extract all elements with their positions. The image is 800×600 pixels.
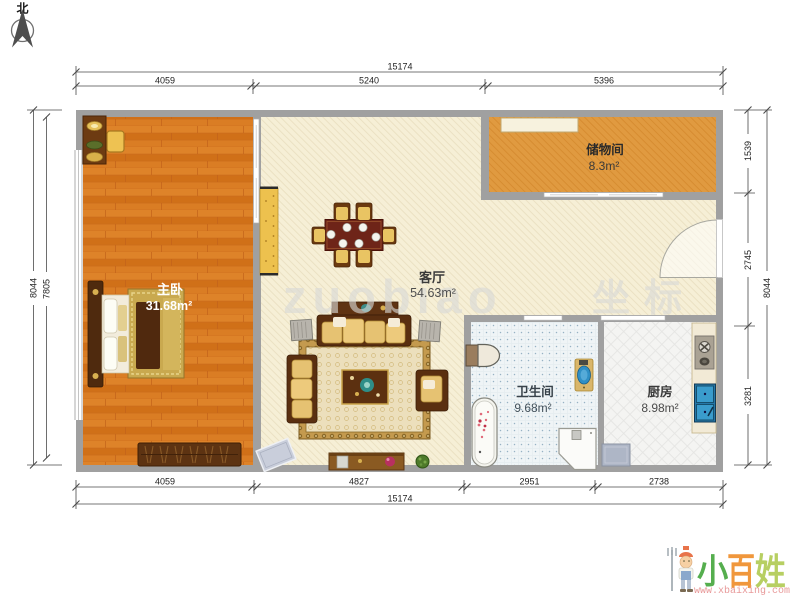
svg-text:3281: 3281 (743, 386, 753, 406)
svg-text:5396: 5396 (594, 76, 614, 86)
svg-text:客厅: 客厅 (419, 270, 445, 285)
svg-text:8.3m²: 8.3m² (589, 159, 620, 173)
svg-text:9.68m²: 9.68m² (514, 401, 551, 415)
svg-text:2738: 2738 (649, 477, 669, 487)
svg-text:5240: 5240 (359, 76, 379, 86)
svg-text:坐标: 坐标 (592, 278, 696, 320)
svg-text:小: 小 (697, 552, 729, 591)
svg-text:4059: 4059 (155, 477, 175, 487)
svg-text:15174: 15174 (387, 62, 412, 72)
svg-text:8044: 8044 (762, 278, 772, 298)
svg-text:4827: 4827 (349, 477, 369, 487)
svg-text:www.xbaixing.com: www.xbaixing.com (694, 585, 790, 597)
svg-text:2745: 2745 (743, 250, 753, 270)
svg-text:7805: 7805 (42, 279, 52, 299)
svg-text:8044: 8044 (29, 278, 39, 298)
svg-text:储物间: 储物间 (585, 142, 624, 157)
svg-text:2951: 2951 (519, 477, 539, 487)
svg-text:54.63m²: 54.63m² (410, 286, 456, 300)
svg-text:4059: 4059 (155, 76, 175, 86)
svg-text:8.98m²: 8.98m² (641, 401, 678, 415)
svg-text:厨房: 厨房 (647, 384, 672, 399)
svg-text:主卧: 主卧 (157, 282, 183, 297)
svg-text:15174: 15174 (387, 494, 412, 504)
svg-text:31.68m²: 31.68m² (146, 299, 193, 313)
svg-text:zuobiao: zuobiao (283, 270, 503, 323)
svg-text:卫生间: 卫生间 (516, 384, 554, 399)
svg-text:1539: 1539 (743, 141, 753, 161)
